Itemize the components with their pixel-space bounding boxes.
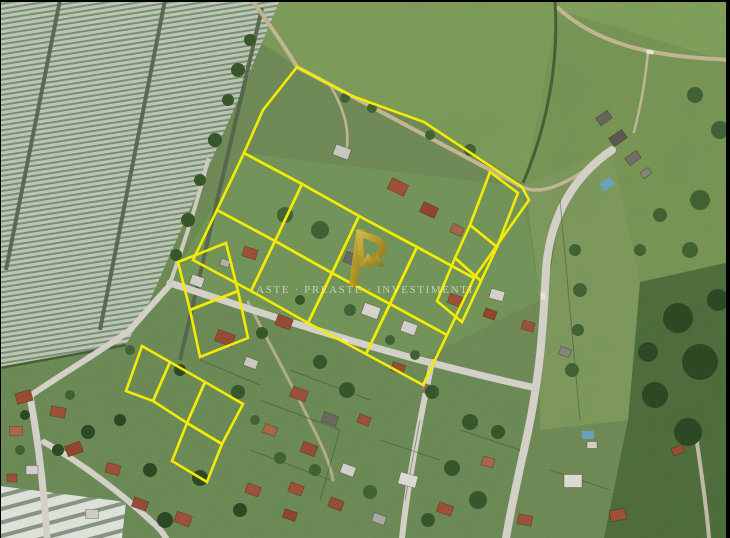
aerial-photo-frame: ASTE · PREASTE · INVESTIMENTI [0,0,730,538]
photo-grain [0,0,730,538]
aerial-photo [0,0,730,538]
